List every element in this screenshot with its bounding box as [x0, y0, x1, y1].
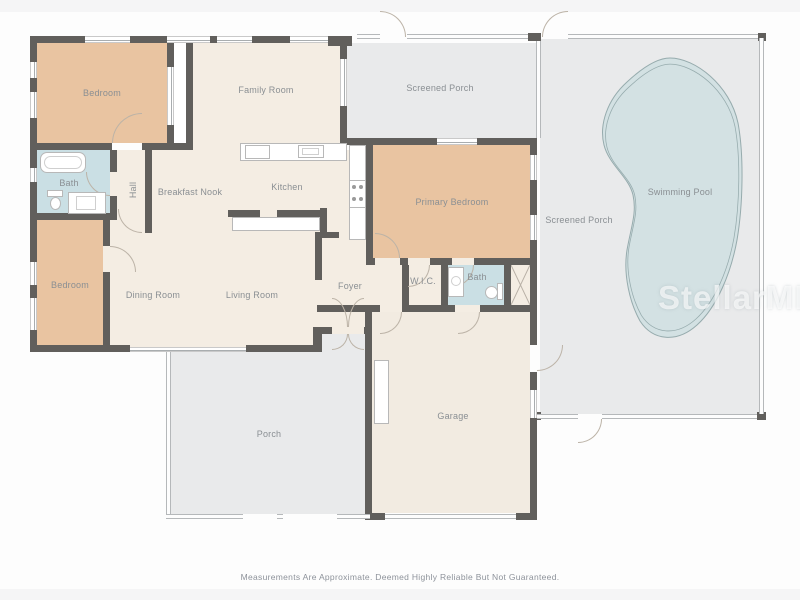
window [30, 262, 37, 285]
wall [30, 182, 37, 262]
burner [359, 197, 363, 201]
island-counter [232, 217, 320, 231]
room-family-room [193, 43, 340, 150]
wall [480, 305, 537, 312]
window [30, 92, 37, 118]
wall [400, 258, 408, 265]
wall [103, 272, 110, 352]
wall [313, 327, 332, 334]
window [85, 36, 130, 43]
bathroom-vanity [68, 192, 106, 214]
label-foyer: Foyer [338, 281, 362, 291]
label-screened-porch-pool: Screened Porch [545, 215, 612, 225]
wall [366, 258, 375, 265]
screen-wall [407, 34, 528, 39]
window [530, 155, 537, 180]
garage-door [385, 514, 516, 519]
toilet-bowl [485, 286, 498, 299]
sink-basin [302, 148, 319, 155]
wall [130, 36, 167, 43]
closet-bifold [511, 265, 530, 305]
label-wic: W.I.C. [410, 276, 436, 286]
wall [504, 265, 511, 305]
window [30, 62, 37, 78]
sink [451, 276, 461, 286]
label-swimming-pool: Swimming Pool [648, 187, 713, 197]
bathroom-vanity [448, 267, 464, 297]
top-band [0, 0, 800, 12]
label-dining-room: Dining Room [126, 290, 180, 300]
wall [30, 36, 85, 43]
window [30, 168, 37, 182]
wall [228, 210, 260, 217]
wall [30, 285, 37, 298]
bathtub-basin [44, 156, 82, 169]
screen-wall [568, 34, 758, 39]
wall [430, 258, 452, 265]
wall [477, 138, 537, 145]
window [30, 298, 37, 330]
window [437, 138, 477, 145]
wall [30, 78, 37, 92]
stove [349, 180, 366, 208]
porch-edge [337, 514, 370, 519]
label-bedroom-top: Bedroom [83, 88, 121, 98]
wall [30, 43, 37, 62]
door-swing [542, 11, 568, 37]
wall [246, 345, 320, 352]
wall [186, 36, 193, 150]
wall [365, 312, 372, 520]
sink [76, 196, 96, 210]
label-porch: Porch [257, 429, 282, 439]
screen-post [528, 33, 541, 41]
label-bedroom-bottom: Bedroom [51, 280, 89, 290]
wall [167, 125, 174, 150]
closet-sliding-door [167, 67, 174, 125]
label-bath-left: Bath [59, 178, 78, 188]
toilet-bowl [50, 197, 61, 210]
label-garage: Garage [437, 411, 468, 421]
utility-closet [374, 360, 389, 424]
screen-wall [602, 414, 757, 419]
bedroom-closet-strip [174, 43, 186, 143]
screen-wall [357, 34, 380, 39]
burner [359, 185, 363, 189]
wall [210, 36, 217, 43]
wall [317, 305, 380, 312]
stellar-mls-watermark: StellarMLS [658, 279, 800, 317]
door-swing [578, 419, 602, 443]
wall [340, 138, 437, 145]
disclaimer-text: Measurements Are Approximate. Deemed Hig… [0, 572, 800, 582]
wall [315, 238, 322, 280]
toilet [47, 190, 63, 197]
screen-wall [537, 414, 578, 419]
wall [530, 418, 537, 513]
window [340, 59, 347, 106]
label-living-room: Living Room [226, 290, 278, 300]
window [530, 390, 537, 418]
porch-edge [166, 514, 243, 519]
window [217, 36, 252, 43]
porch-edge [277, 514, 283, 519]
wall [110, 150, 117, 172]
kitchen-sink [298, 145, 324, 158]
wall [530, 180, 537, 215]
wall [530, 240, 537, 345]
wall [110, 196, 117, 213]
label-breakfast-nook: Breakfast Nook [158, 187, 222, 197]
door-swing [380, 11, 406, 37]
label-bath-right: Bath [467, 272, 486, 282]
screen-wall [759, 38, 764, 414]
label-primary-bedroom: Primary Bedroom [415, 197, 488, 207]
wall [30, 213, 117, 220]
burner [352, 197, 356, 201]
window [530, 215, 537, 240]
bathtub [40, 152, 86, 173]
bottom-band [0, 589, 800, 600]
wall [252, 36, 290, 43]
burner [352, 185, 356, 189]
wall [474, 258, 537, 265]
window [130, 347, 246, 352]
wall [516, 513, 537, 520]
label-hall: Hall [128, 182, 138, 198]
wall [530, 138, 537, 155]
screen-wall [536, 41, 541, 138]
wall [103, 220, 110, 246]
wall [366, 145, 373, 265]
label-family-room: Family Room [238, 85, 293, 95]
porch-edge [166, 352, 171, 519]
wall [441, 265, 448, 305]
label-screened-porch-top: Screened Porch [406, 83, 473, 93]
window [167, 36, 210, 43]
wall [145, 150, 152, 233]
floorplan-canvas: Bedroom Family Room Screened Porch Scree… [0, 0, 800, 600]
wall [402, 305, 455, 312]
window [290, 36, 328, 43]
refrigerator [245, 145, 270, 159]
wall [30, 345, 130, 352]
wall [340, 36, 347, 59]
wall [530, 372, 537, 390]
label-kitchen: Kitchen [271, 182, 302, 192]
wall [30, 143, 112, 150]
wall [340, 106, 347, 138]
